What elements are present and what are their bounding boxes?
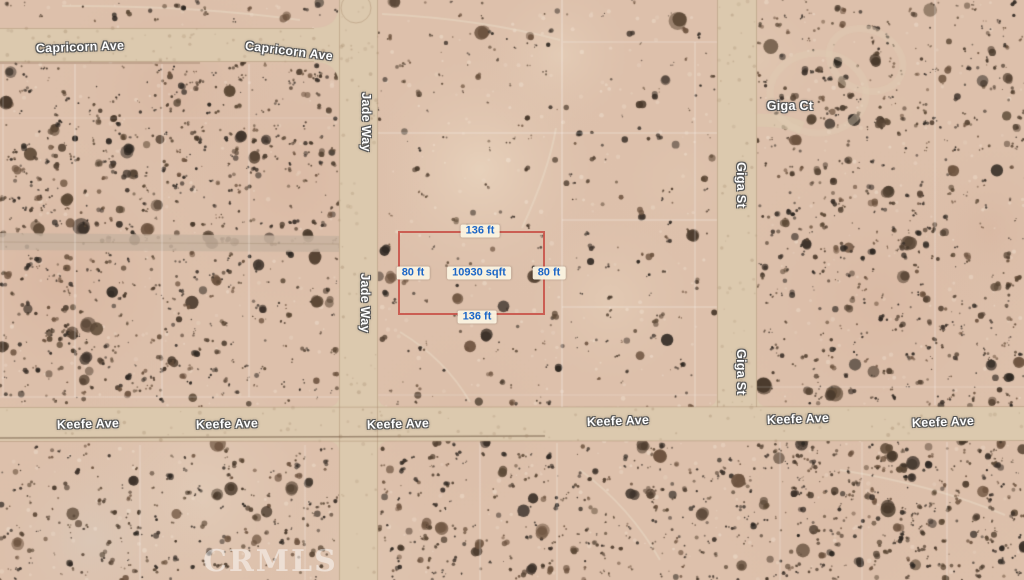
satellite-map[interactable]: Capricorn Ave Capricorn Ave Jade Way Jad… — [0, 0, 1024, 580]
parcel-dim-right: 80 ft — [533, 267, 566, 280]
parcel-area-label: 10930 sqft — [447, 267, 511, 280]
parcel-dim-bottom: 136 ft — [458, 311, 497, 324]
parcel-dim-left: 80 ft — [397, 267, 430, 280]
parcel-dim-top: 136 ft — [461, 225, 500, 238]
